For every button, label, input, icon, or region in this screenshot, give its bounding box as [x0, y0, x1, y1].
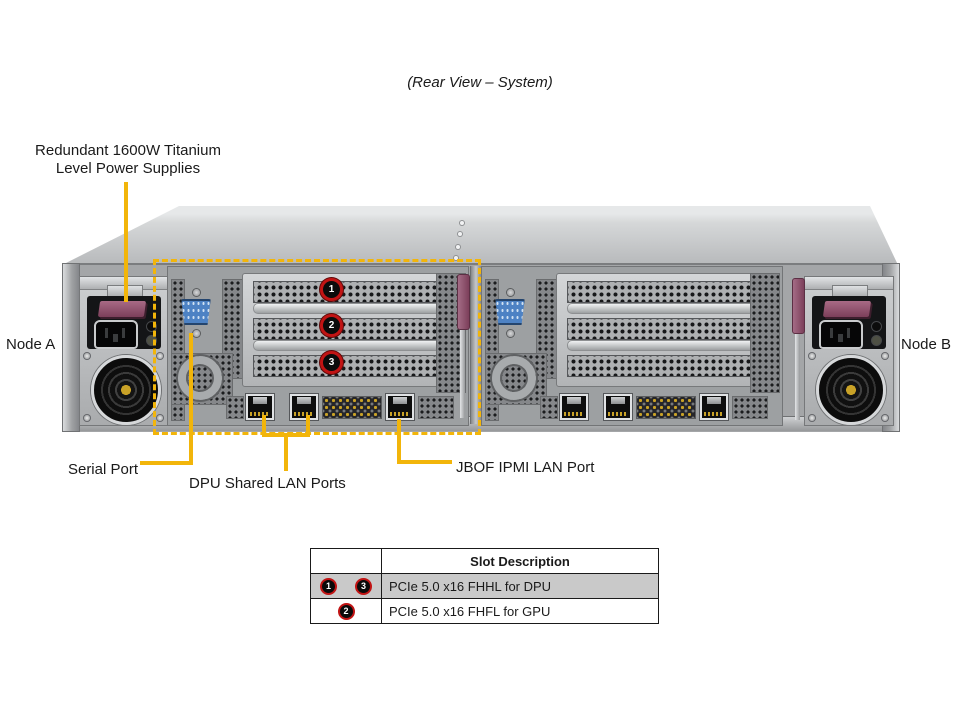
- screw: [882, 415, 888, 421]
- figure-title: (Rear View – System): [0, 74, 960, 91]
- psu-label-line2: Level Power Supplies: [17, 160, 239, 178]
- ac-inlet-c14: [819, 320, 863, 349]
- ac-inlet-panel: [87, 296, 161, 349]
- table-row: 1 3 PCIe 5.0 x16 FHHL for DPU: [311, 574, 659, 599]
- screw: [809, 353, 815, 359]
- psu-retention-clip: [98, 301, 146, 317]
- lid-screw: [456, 245, 460, 249]
- jbof-ipmi-lan-port-label: JBOF IPMI LAN Port: [456, 459, 594, 477]
- pcie-slot-assembly: [556, 273, 774, 387]
- dpu-callout-line-v: [284, 437, 288, 471]
- slot-1-badge: 1: [320, 578, 337, 595]
- serial-callout-line-v: [189, 333, 193, 465]
- slot-separator: [567, 340, 765, 351]
- slot-3-badge: 3: [355, 578, 372, 595]
- psu-fan: [816, 355, 886, 425]
- psu-led: [871, 321, 882, 332]
- power-supply-right: [804, 276, 894, 426]
- screw: [84, 415, 90, 421]
- vent-grid: [732, 396, 768, 419]
- node-b-panel: [481, 266, 783, 426]
- slot-description-dpu: PCIe 5.0 x16 FHHL for DPU: [382, 574, 659, 599]
- jbof-callout-line-v: [397, 419, 401, 464]
- table-header-slot-description: Slot Description: [382, 549, 659, 574]
- psu-callout-line: [124, 182, 128, 302]
- vent-grid: [540, 396, 558, 419]
- pcie-slot-cover-1: [567, 281, 765, 303]
- serial-callout-line-h: [140, 461, 193, 465]
- screw: [882, 353, 888, 359]
- jbof-callout-line-h: [397, 460, 452, 464]
- jbof-ipmi-lan-port: [700, 394, 728, 420]
- screw: [84, 353, 90, 359]
- rear-view-diagram: (Rear View – System) Redundant 1600W Tit…: [0, 0, 960, 720]
- dpu-lan-ports-label: DPU Shared LAN Ports: [189, 475, 346, 493]
- screw: [507, 289, 514, 296]
- lid-screw: [460, 221, 464, 225]
- psu-fan: [91, 355, 161, 425]
- slot-3-badge: 3: [320, 351, 343, 374]
- db9-port: [494, 299, 526, 325]
- cable-grommet-ring: [492, 356, 536, 400]
- slot-separator: [567, 303, 765, 314]
- psu-label-line1: Redundant 1600W Titanium: [17, 142, 239, 160]
- slot-description-table: Slot Description 1 3 PCIe 5.0 x16 FHHL f…: [310, 548, 659, 624]
- slot-description-gpu: PCIe 5.0 x16 FHFL for GPU: [382, 599, 659, 624]
- lid-screw: [458, 232, 462, 236]
- screw: [809, 415, 815, 421]
- node-b-release-lever: [792, 278, 805, 334]
- node-a-highlight-border: [153, 259, 481, 435]
- rack-ear-left: [62, 263, 80, 432]
- ac-inlet-c14: [94, 320, 138, 349]
- chassis-top-lid: [62, 204, 898, 265]
- table-row: 2 PCIe 5.0 x16 FHFL for GPU: [311, 599, 659, 624]
- psu-label: Redundant 1600W Titanium Level Power Sup…: [17, 142, 239, 178]
- ac-inlet-panel: [812, 296, 886, 349]
- psu-led: [871, 335, 882, 346]
- slot-2-badge: 2: [338, 603, 355, 620]
- serial-port-connector: [492, 289, 528, 337]
- psu-retention-clip: [823, 301, 871, 317]
- table-header-row: Slot Description: [311, 549, 659, 574]
- serial-port-label: Serial Port: [50, 461, 138, 479]
- dpu-lan-port-2: [604, 394, 632, 420]
- slot-1-badge: 1: [320, 278, 343, 301]
- pcie-slot-cover-2: [567, 318, 765, 340]
- node-b-lever-rod: [795, 330, 800, 420]
- dpu-lan-port-1: [560, 394, 588, 420]
- table-header-empty-cell: [311, 549, 382, 574]
- screw: [507, 330, 514, 337]
- node-a-label: Node A: [6, 336, 55, 354]
- slot-2-badge: 2: [320, 314, 343, 337]
- pcie-slot-cover-3: [567, 355, 765, 377]
- vent-grid-gold: [636, 396, 696, 419]
- node-b-label: Node B: [901, 336, 951, 354]
- vent-grid: [750, 273, 780, 393]
